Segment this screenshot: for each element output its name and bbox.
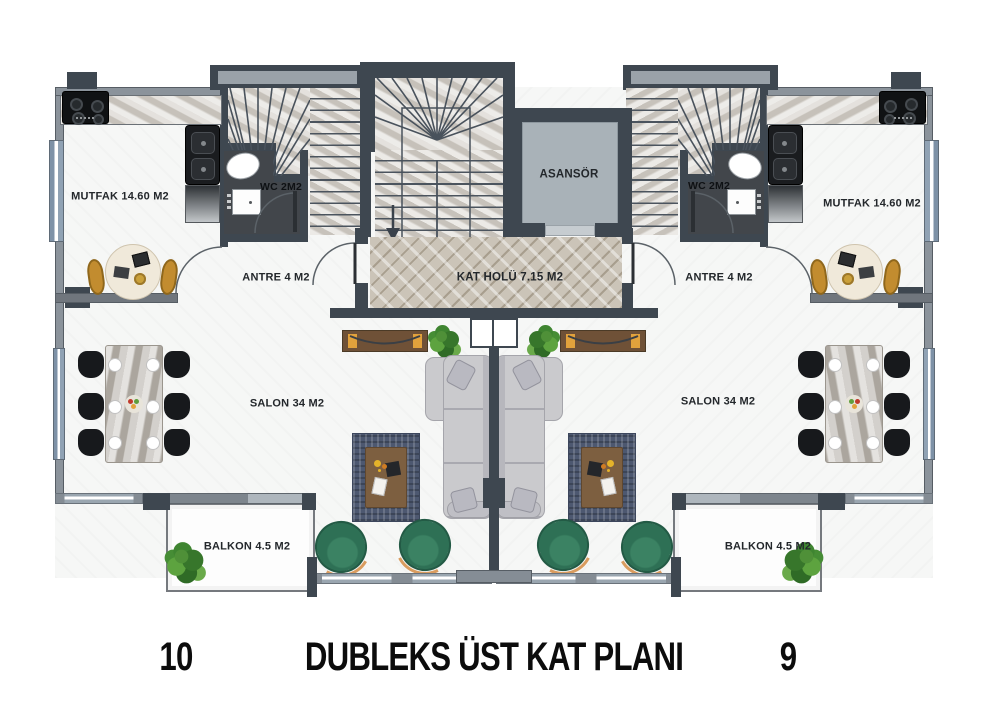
floor-plan-canvas: MUTFAK 14.60 M2 MUTFAK 14.60 M2 WC 2M2 W…	[0, 0, 988, 711]
room-label-wc-left: WC 2M2	[260, 182, 302, 193]
tv-icon	[350, 336, 420, 344]
wc-door-arc	[693, 193, 733, 233]
elevator-wall-bottom	[512, 223, 545, 237]
room-label-living-left: SALON 34 M2	[250, 399, 324, 410]
party-wall	[489, 348, 499, 578]
tv-icon	[568, 336, 638, 344]
unit-number-right: 9	[780, 637, 797, 677]
elevator-wall-top	[512, 108, 628, 122]
room-label-kitchen-left: MUTFAK 14.60 M2	[71, 192, 169, 203]
elevator-wall-left	[512, 108, 522, 237]
kitchen-door-arc	[766, 247, 812, 293]
elevator-wall-bottom	[595, 223, 628, 237]
entry-door-arc	[313, 243, 355, 285]
kitchen-door-arc	[176, 247, 222, 293]
shaft-niche	[492, 318, 518, 348]
party-wall-column	[483, 478, 505, 508]
room-label-entry-left: ANTRE 4 M2	[242, 273, 309, 284]
room-label-wc-right: WC 2M2	[688, 181, 730, 192]
room-label-balcony-left: BALKON 4.5 M2	[204, 542, 290, 553]
elevator-door	[545, 225, 595, 236]
room-label-balcony-right: BALKON 4.5 M2	[725, 542, 811, 553]
unit-number-left: 10	[159, 637, 192, 677]
room-label-living-right: SALON 34 M2	[681, 397, 755, 408]
room-label-entry-right: ANTRE 4 M2	[685, 273, 752, 284]
wc-door-arc	[255, 193, 295, 233]
room-label-kitchen-right: MUTFAK 14.60 M2	[823, 199, 921, 210]
elevator-wall-right	[618, 108, 632, 237]
plan-title: DUBLEKS ÜST KAT PLANI	[305, 637, 683, 677]
stair-fan-lines	[375, 78, 503, 140]
hall-bottom-wall	[330, 308, 658, 318]
room-label-elevator: ASANSÖR	[540, 169, 599, 181]
bottom-center-wall	[456, 570, 532, 583]
room-label-hall: KAT HOLÜ 7.15 M2	[457, 272, 564, 284]
stair-landing-outline	[402, 108, 470, 238]
